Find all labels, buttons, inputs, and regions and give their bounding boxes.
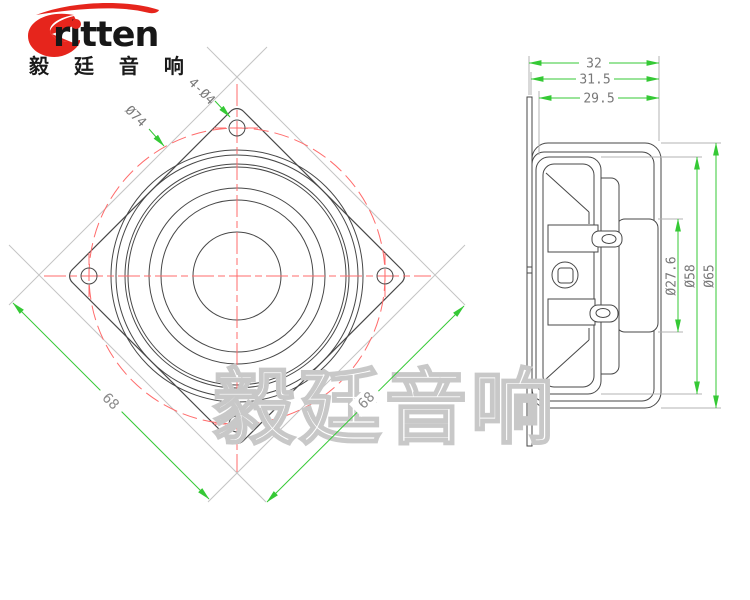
brand-i-dot [71,19,81,29]
watermark-text: 毅廷音响 [213,361,557,456]
cad-drawing: 毅廷音响 32 31.5 29.5 [0,0,750,600]
brand-name-chinese: 毅 廷 音 响 [29,50,193,79]
dim-overall-dia: Ø65 [703,264,718,287]
dim-cone-dia: Ø58 [684,264,699,287]
magnet [616,219,658,332]
brand-name: ritten [53,18,158,53]
dim-depth-total: 32 [586,57,602,72]
leader-hole-callout [215,101,230,117]
dim-bolt-circle-dia: Ø74 [122,103,149,130]
leader-bolt-circle [149,129,164,146]
dim-magnet-dia: Ø27.6 [665,256,680,295]
dim-depth-basket: 29.5 [583,92,614,107]
dim-hole-callout: 4-Ø4 [185,75,218,108]
dim-depth-flange-back: 31.5 [579,73,610,88]
company-logo: ritten 毅 廷 音 响 [16,0,206,80]
drawing-canvas: 毅廷音响 32 31.5 29.5 [0,0,750,600]
